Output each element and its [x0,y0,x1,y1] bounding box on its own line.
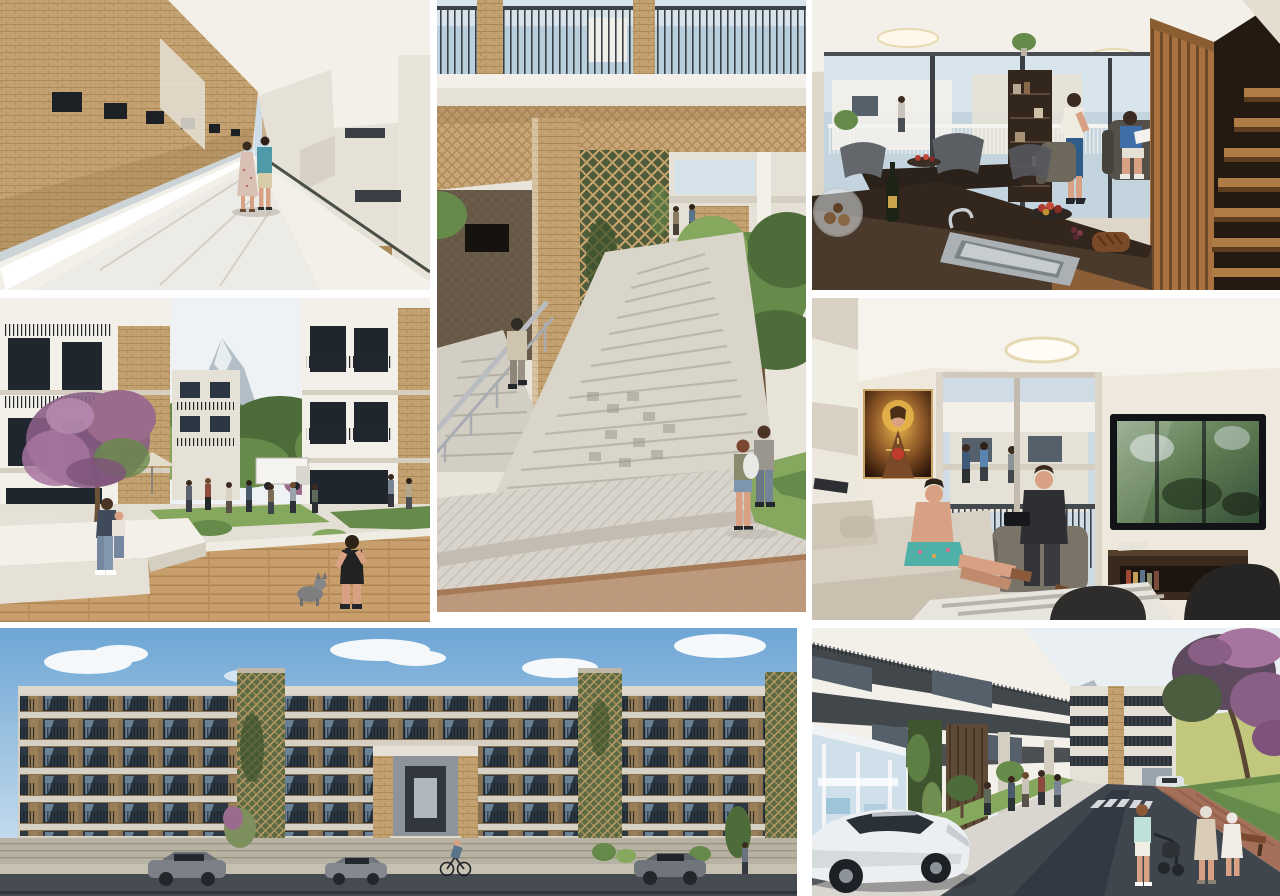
wall-tv [1110,414,1266,530]
walkway-scene [0,0,430,290]
panel-kitchen-interior [812,0,1280,290]
kitchen-scene [812,0,1280,290]
religious-painting [864,390,932,478]
distant-car [1156,776,1184,788]
ceiling-light [1006,338,1078,362]
neighbour-figure [898,96,905,132]
panel-stair-plaza [437,0,806,612]
facade-scene [0,628,797,896]
pedestrian [742,842,748,874]
slat-screen [1150,18,1214,290]
panel-street-facade [0,628,797,896]
courtyard-scene [0,298,430,622]
entrance-portal [373,746,478,842]
tablet [1004,512,1030,526]
street-scene [812,628,1280,896]
sun-streak [812,338,858,408]
glass-bowl [814,188,862,236]
block-a-windows [20,696,237,836]
timber-stair [1212,0,1280,290]
panel-living-interior [812,298,1280,620]
stair-scene [437,0,806,612]
render-collage [0,0,1280,896]
balcony-railing-top [437,0,806,88]
slab-edge [437,88,806,106]
panel-courtyard [0,298,430,622]
trellis-tower-3 [765,672,797,840]
white-sedan [812,809,977,893]
bread [1092,232,1130,252]
patterned-shorts [904,542,966,566]
living-scene [812,298,1280,620]
panel-access-walkway [0,0,430,290]
panel-street-view [812,628,1280,896]
